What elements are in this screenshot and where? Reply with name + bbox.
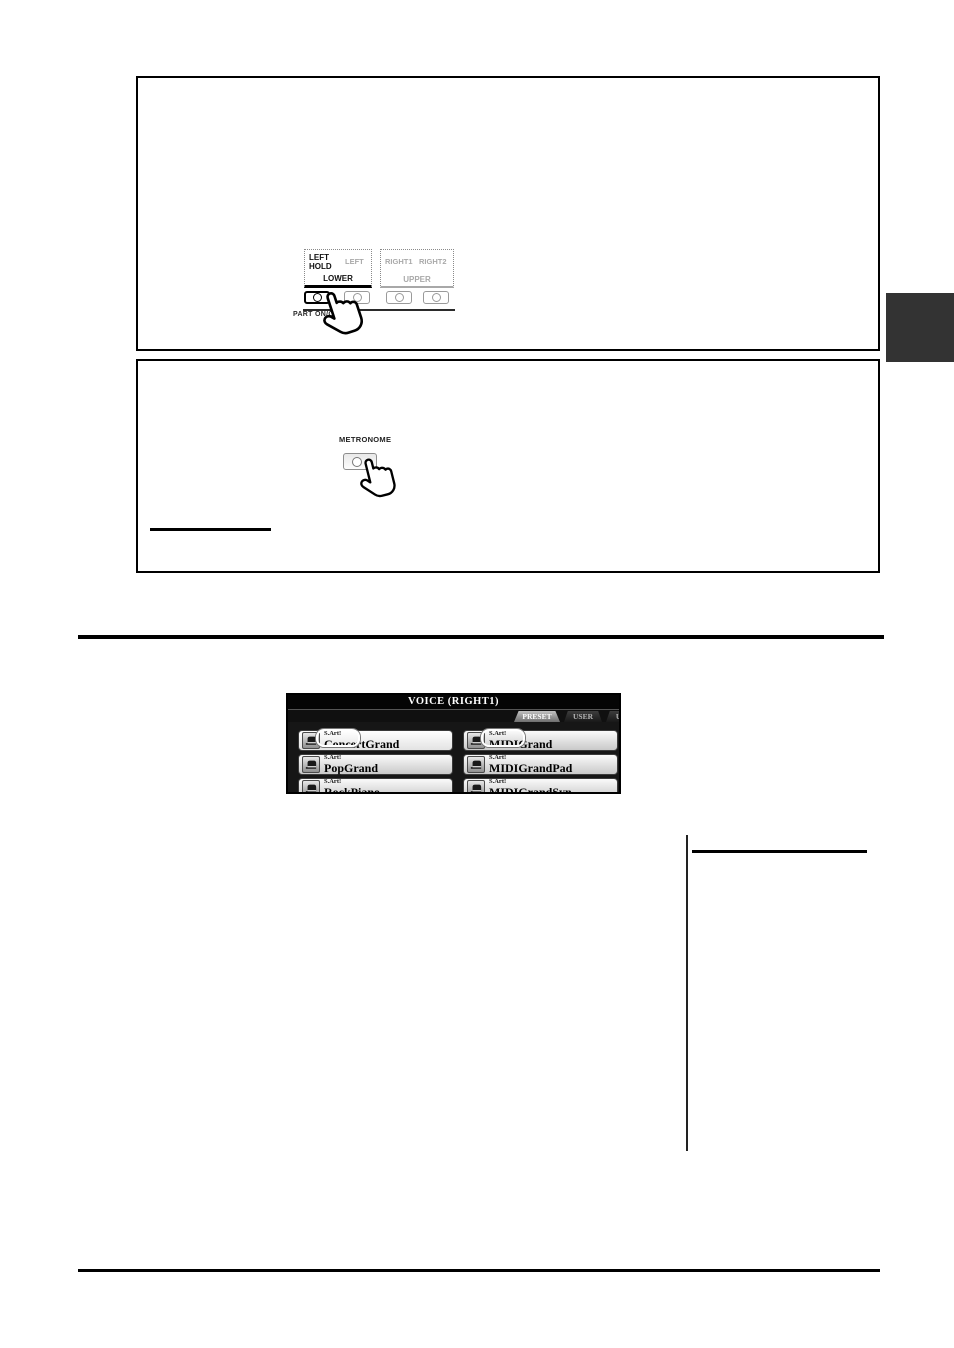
tab-preset: PRESET [514,711,560,722]
upper-part-group: RIGHT1 RIGHT2 UPPER [380,249,454,288]
margin-note-rule-vertical [686,835,688,1151]
metronome-label: METRONOME [339,435,391,444]
led-indicator-icon [395,293,404,302]
part-button-left-hold [304,291,330,304]
voice-name: RockPiano [324,786,380,794]
part-button-right1 [386,291,412,304]
screen-tab-bar: PRESET USER USB1 [288,709,619,722]
tab-user: USER [564,711,602,722]
voice-name: MIDIGrandPad [489,762,572,774]
note-heading-underline [150,528,271,531]
lower-part-group: LEFT HOLD LEFT LOWER [304,249,372,288]
manual-page: LEFT HOLD LEFT LOWER RIGHT1 RIGHT2 UPPER… [0,0,954,1348]
right1-label: RIGHT1 [385,257,413,266]
section-divider-rule [78,635,884,639]
voice-name: PopGrand [324,762,378,774]
voice-button-concertgrand: S.Art! ConcertGrand [298,730,453,751]
grand-piano-icon [467,756,485,773]
led-indicator-icon [313,293,322,302]
right2-label: RIGHT2 [419,257,447,266]
voice-button-popgrand: S.Art! PopGrand [298,754,453,775]
voice-name: ConcertGrand [324,738,399,750]
voice-name: MIDIGrandSyn [489,786,572,794]
lower-caption: LOWER [305,274,371,283]
part-button-left [344,291,370,304]
instruction-box-metronome [136,359,880,573]
metronome-button [343,453,377,470]
led-indicator-icon [352,457,362,467]
voice-button-midigrand: S.Art! MIDIGrand [463,730,618,751]
voice-button-rockpiano: S.Art! RockPiano [298,778,453,794]
grand-piano-icon [302,756,320,773]
grand-piano-icon [467,732,485,749]
led-indicator-icon [432,293,441,302]
grand-piano-icon [302,732,320,749]
part-on-off-label: PART ON/OFF [293,311,343,318]
grand-piano-icon [302,780,320,794]
instruction-box-keyboard-parts [136,76,880,351]
left-hold-label: LEFT HOLD [309,253,332,271]
upper-caption: UPPER [381,275,453,284]
voice-selection-screen: VOICE (RIGHT1) PRESET USER USB1 S.Art! C… [286,693,621,794]
left-label: LEFT [345,257,364,266]
voice-button-midigrandsyn: S.Art! MIDIGrandSyn [463,778,618,794]
tab-usb1: USB1 [606,711,621,722]
voice-name: MIDIGrand [489,738,552,750]
margin-note-heading-underline [692,850,867,853]
led-indicator-icon [353,293,362,302]
part-button-right2 [423,291,449,304]
screen-title: VOICE (RIGHT1) [288,695,619,709]
voice-button-midigrandpad: S.Art! MIDIGrandPad [463,754,618,775]
footer-rule [78,1269,880,1272]
grand-piano-icon [467,780,485,794]
page-index-tab [886,293,954,362]
